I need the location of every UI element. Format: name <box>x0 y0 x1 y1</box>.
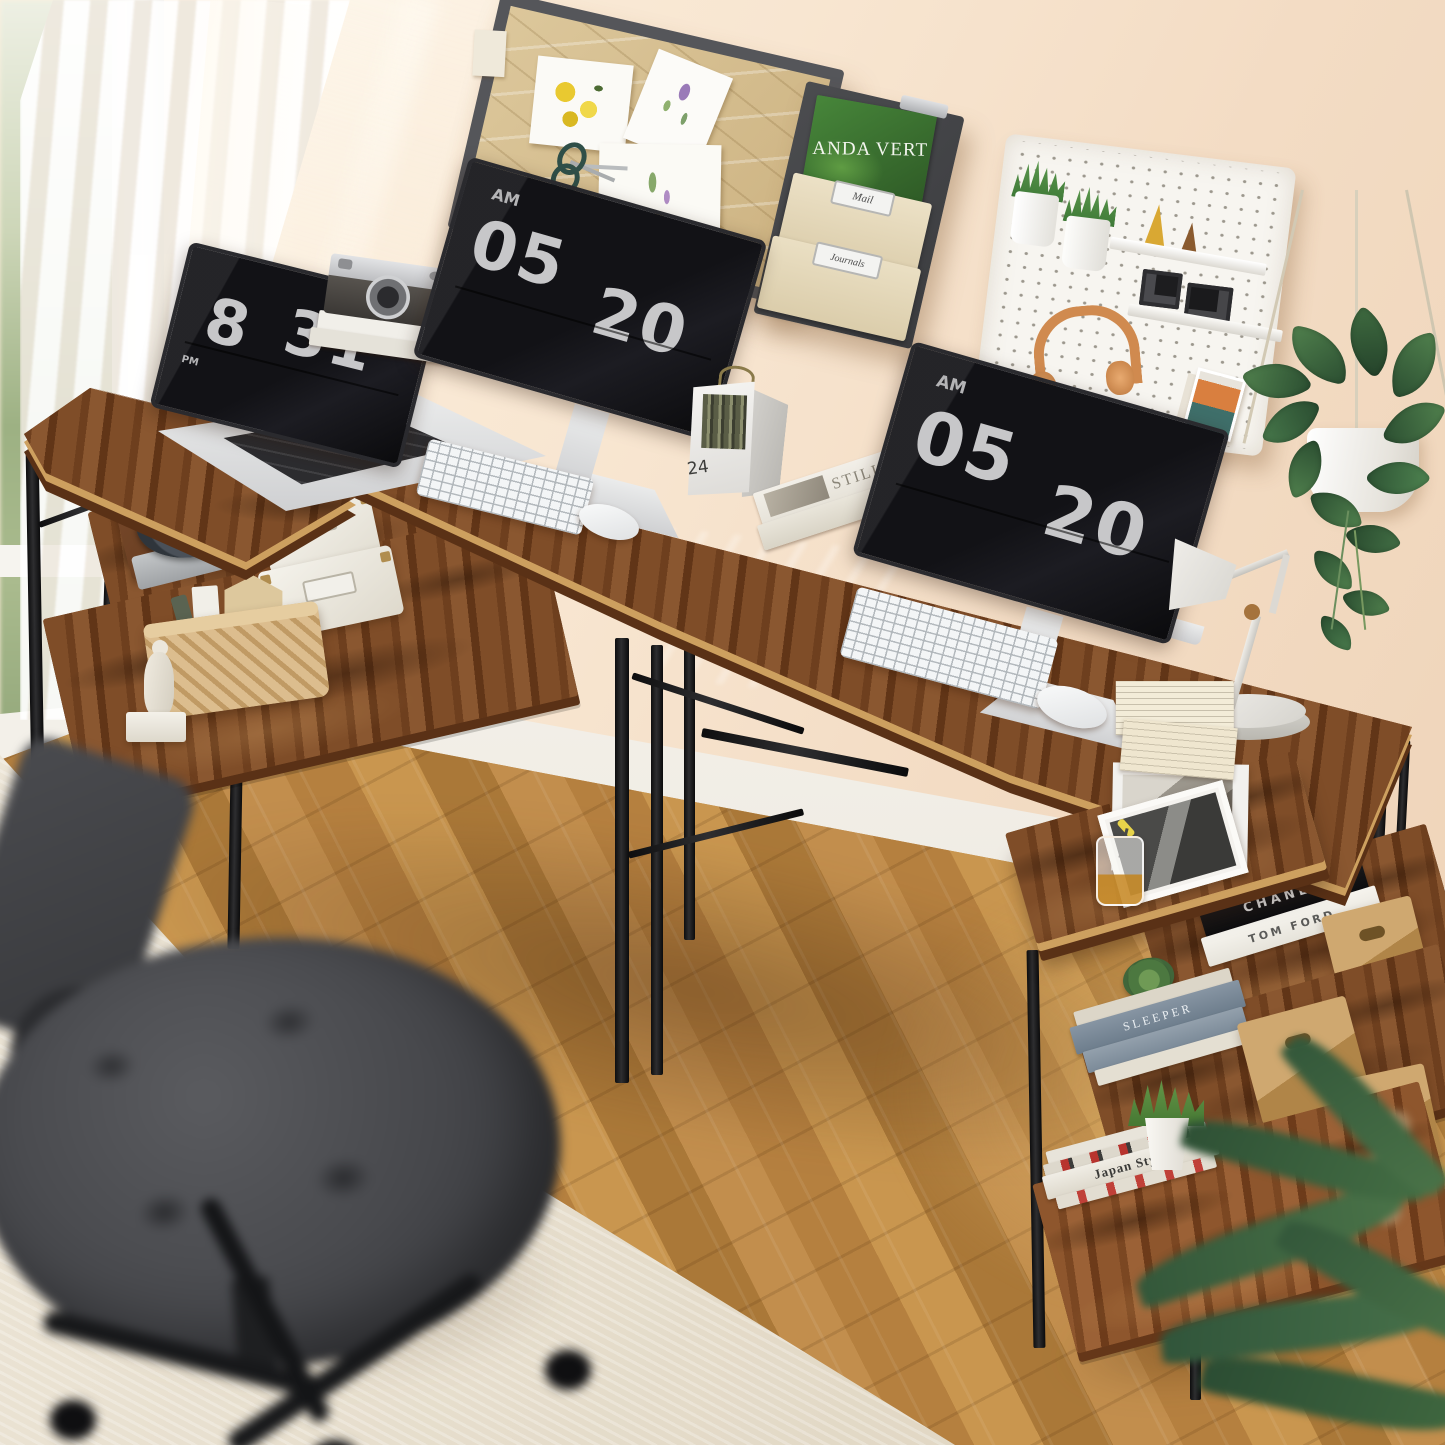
pegboard-planter-1 <box>1009 191 1059 248</box>
keyboard <box>420 448 610 548</box>
desk-leg <box>684 610 695 940</box>
laptop-clock-meridiem: PM <box>180 354 199 369</box>
office-chair <box>0 752 670 1445</box>
pegboard-planter-2 <box>1061 215 1111 272</box>
pegboard-frame-1 <box>1139 269 1183 310</box>
chair-caster <box>545 1350 591 1390</box>
calendar-day: 24 <box>686 457 710 480</box>
organizer-magazine-title: ANDA VERT <box>812 138 928 162</box>
left-monitor-hour: 05 <box>463 210 573 300</box>
memo-tag <box>472 30 506 78</box>
chair-caster <box>310 1440 360 1445</box>
palm-plant <box>1140 1100 1445 1445</box>
drinking-glass <box>1096 836 1144 908</box>
right-monitor-hour: 05 <box>906 399 1026 497</box>
left-monitor-minute: 20 <box>585 278 695 368</box>
home-office-product-photo: ANDA VERT Mail Journals <box>0 0 1445 1445</box>
statue-figurine <box>132 640 192 760</box>
organizer-label-mail: Mail <box>851 190 874 206</box>
chair-caster <box>50 1400 96 1440</box>
notebook-page-bottom <box>1120 718 1238 780</box>
organizer-label-journals: Journals <box>829 251 866 270</box>
right-monitor-meridiem: AM <box>934 371 968 399</box>
